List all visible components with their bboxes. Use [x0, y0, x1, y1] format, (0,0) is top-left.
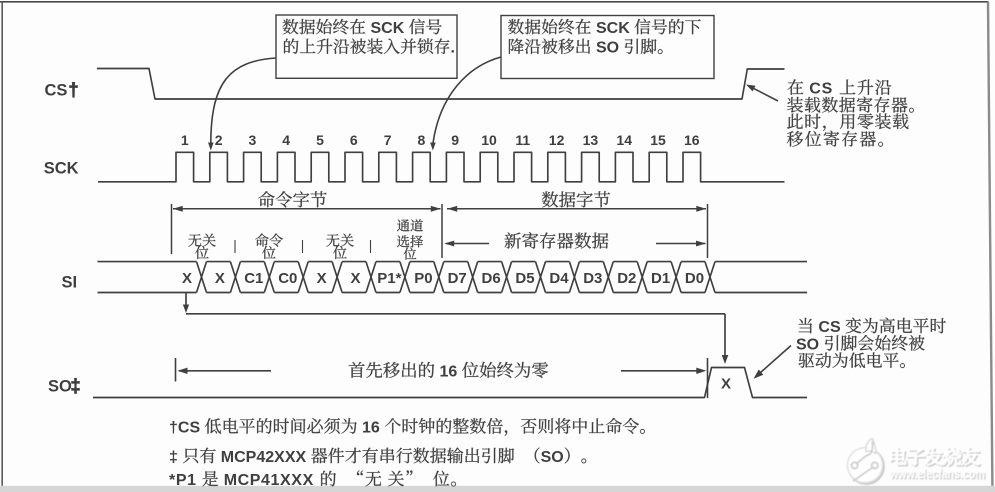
svg-text:‡: ‡ — [169, 449, 178, 466]
svg-text:www.elecfans.com: www.elecfans.com — [889, 467, 985, 481]
svg-text:X: X — [317, 270, 327, 287]
svg-text:|: | — [233, 238, 237, 253]
svg-text:16: 16 — [440, 364, 458, 381]
svg-text:.: . — [451, 40, 455, 57]
svg-text:P1*: P1* — [377, 270, 401, 287]
svg-text:CS: CS — [809, 81, 833, 98]
svg-text:†: † — [69, 80, 79, 100]
svg-text:X: X — [350, 270, 360, 287]
svg-text:|: | — [369, 238, 373, 253]
svg-text:D1: D1 — [651, 270, 670, 287]
svg-text:†CS: †CS — [169, 419, 200, 436]
svg-text:10: 10 — [481, 132, 497, 148]
svg-text:SO: SO — [596, 40, 619, 57]
svg-text:‡: ‡ — [71, 376, 81, 396]
svg-text:SCK: SCK — [596, 20, 630, 37]
svg-text:16: 16 — [684, 132, 700, 148]
svg-text:3: 3 — [249, 132, 257, 148]
svg-text:4: 4 — [282, 132, 290, 148]
svg-text:D2: D2 — [617, 270, 636, 287]
svg-text:9: 9 — [451, 132, 459, 148]
svg-text:D0: D0 — [685, 270, 704, 287]
svg-text:D3: D3 — [583, 270, 602, 287]
svg-text:SI: SI — [62, 273, 78, 291]
svg-text:1: 1 — [181, 132, 189, 148]
svg-text:8: 8 — [418, 132, 426, 148]
svg-text:16: 16 — [362, 419, 380, 436]
svg-text:MCP41XXX: MCP41XXX — [224, 472, 314, 489]
svg-text:13: 13 — [583, 132, 599, 148]
svg-text:D7: D7 — [448, 270, 467, 287]
svg-text:12: 12 — [549, 132, 565, 148]
svg-text:CS: CS — [818, 319, 841, 336]
svg-text:P0: P0 — [414, 270, 432, 287]
svg-text:SO: SO — [48, 378, 72, 396]
svg-text:|: | — [301, 238, 305, 253]
svg-text:MCP42XXX: MCP42XXX — [221, 449, 307, 466]
svg-text:14: 14 — [616, 132, 632, 148]
svg-text:SO: SO — [796, 336, 819, 353]
svg-text:2: 2 — [215, 132, 223, 148]
svg-text:X: X — [182, 270, 192, 287]
svg-text:SCK: SCK — [44, 159, 79, 177]
svg-text:15: 15 — [650, 132, 666, 148]
svg-text:C1: C1 — [244, 270, 263, 287]
svg-text:D6: D6 — [482, 270, 501, 287]
svg-text:D4: D4 — [549, 270, 569, 287]
svg-text:C0: C0 — [278, 270, 297, 287]
svg-text:SCK: SCK — [371, 20, 405, 37]
svg-text:X: X — [721, 376, 731, 393]
svg-text:X: X — [215, 270, 225, 287]
svg-text:11: 11 — [515, 132, 530, 148]
svg-text:CS: CS — [45, 81, 68, 99]
svg-text:D5: D5 — [515, 270, 534, 287]
svg-text:7: 7 — [384, 132, 392, 148]
svg-text:*P1: *P1 — [169, 472, 197, 489]
svg-text:SO: SO — [541, 449, 564, 466]
svg-text:6: 6 — [350, 132, 358, 148]
svg-text:5: 5 — [316, 132, 324, 148]
